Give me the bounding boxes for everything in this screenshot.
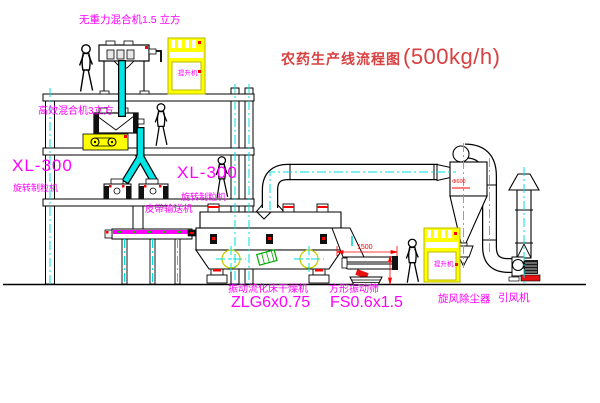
belt-conveyor-label: 皮带输送机 <box>145 205 193 215</box>
granulator-right-model-label: XL-300 <box>177 164 238 181</box>
elevator-top-label: 提升机 <box>178 71 198 78</box>
gravity-free-mixer-drawing <box>99 41 161 94</box>
title-capacity: (500kg/h) <box>403 44 500 70</box>
sieve-dimension-label: 1500 <box>357 244 373 251</box>
fan-label: 引风机 <box>498 293 530 304</box>
rotary-granulator-right-drawing <box>139 179 168 199</box>
granulator-left-model-label: XL-300 <box>12 157 73 174</box>
granulator-right-name-label: 旋转制粒机 <box>181 193 226 202</box>
dryer-model-label: ZLG6x0.75 <box>231 295 310 311</box>
worker-figure <box>406 239 418 282</box>
high-efficiency-mixer-label: 高效混合机3立方 <box>38 107 114 117</box>
cyclone-label: 旋风除尘器 <box>438 294 491 305</box>
gravity-mixer-label: 无重力混合机1.5 立方 <box>79 15 181 26</box>
fluid-bed-dryer-drawing <box>188 204 342 283</box>
duct-dryer-to-cyclone <box>270 165 455 209</box>
worker-figure <box>155 104 167 146</box>
granulator-left-name-label: 旋转制粒机 <box>13 184 58 193</box>
elevator-right-label: 提升机 <box>434 262 454 269</box>
belt-conveyor-drawing <box>105 206 192 284</box>
square-vibrating-sieve-drawing <box>332 228 398 285</box>
title-text: 农药生产线流程图 <box>281 49 401 69</box>
bucket-elevator-right-drawing <box>424 228 460 282</box>
cad-flow-diagram: 农药生产线流程图 (500kg/h) 无重力混合机1.5 立方 高效混合机3立方… <box>0 0 600 403</box>
worker-figure <box>80 45 93 92</box>
drawing-title: 农药生产线流程图 (500kg/h) <box>281 44 500 70</box>
cyclone-spec-label: Φ600 <box>452 180 466 186</box>
bucket-elevator-top-drawing <box>168 38 205 94</box>
sieve-model-label: FS0.6x1.5 <box>330 295 403 311</box>
